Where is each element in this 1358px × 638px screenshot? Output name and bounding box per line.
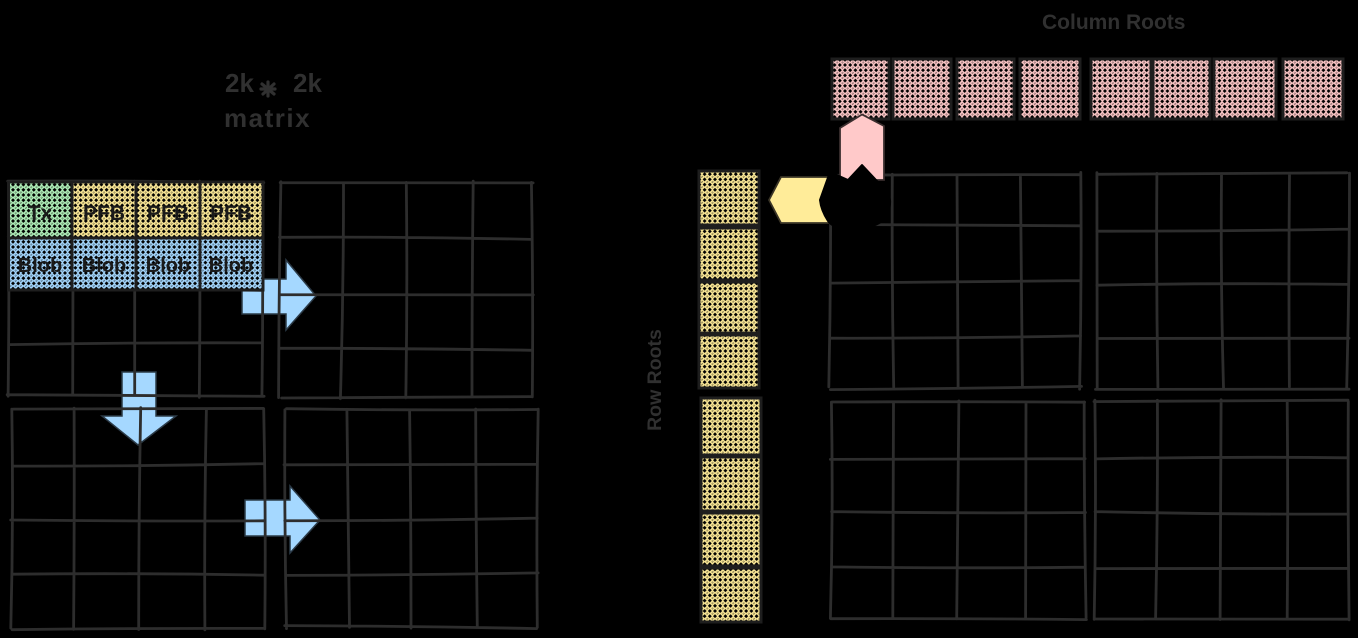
svg-text:matrix: matrix [224,103,311,133]
svg-text:Blob: Blob [18,255,62,277]
svg-text:2k: 2k [293,68,322,98]
svg-text:PFB: PFB [83,202,125,225]
svg-text:Blob: Blob [82,255,126,277]
svg-text:Blob: Blob [209,255,253,277]
svg-text:PFB: PFB [147,202,189,225]
svg-text:Column Roots: Column Roots [1042,11,1185,34]
svg-text:Blob: Blob [146,255,190,277]
svg-text:Row Roots: Row Roots [644,329,666,431]
svg-text:Tx: Tx [28,202,53,225]
svg-text:PFB: PFB [210,202,252,225]
svg-text:2k: 2k [225,68,254,98]
